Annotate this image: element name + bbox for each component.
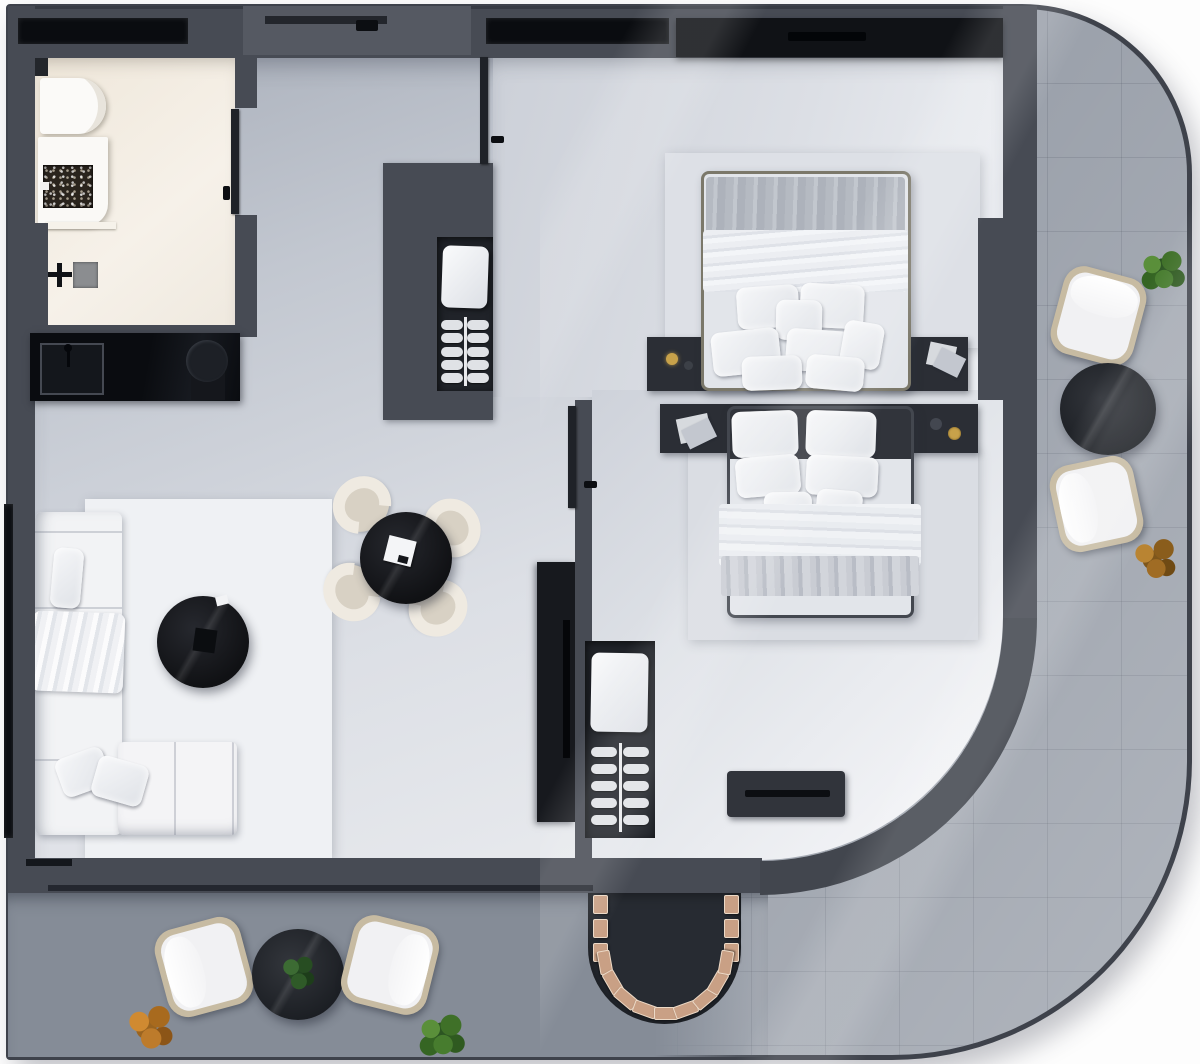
- coffee-table-tray: [193, 628, 218, 654]
- terrace-chair-bottom: [1046, 452, 1147, 556]
- terrace-table: [1060, 363, 1156, 455]
- window-bathroom: [18, 18, 188, 44]
- hanger-row: [623, 747, 650, 757]
- hanger-row: [467, 373, 488, 383]
- faucet-spout: [67, 350, 70, 367]
- hanger-row: [623, 815, 650, 825]
- hanger-row: [623, 798, 650, 808]
- bedroom2-closet-niche: [585, 641, 655, 838]
- hanger-row: [591, 764, 618, 774]
- round-basin: [186, 340, 228, 382]
- hanger-row: [441, 373, 462, 383]
- wardrobe-handle: [788, 32, 866, 41]
- closet-seat-pillow: [591, 652, 650, 732]
- window-left-strip: [4, 504, 13, 838]
- hanger-row: [441, 320, 462, 330]
- toilet-cistern-plate: [33, 56, 48, 76]
- basin-tap: [40, 182, 49, 190]
- hanger-row: [467, 333, 488, 343]
- hanger-row: [467, 347, 488, 357]
- wood-step-block: [724, 895, 739, 914]
- terrace-plant-green: [1136, 247, 1190, 297]
- mosaic-basin: [43, 165, 93, 208]
- wall-bathroom-west-block: [35, 223, 48, 330]
- hanger-row: [591, 798, 618, 808]
- floor-tap-cross-v: [57, 263, 62, 287]
- balcony-plant-orange: [120, 1000, 180, 1060]
- closet-seat-pillow: [441, 245, 489, 308]
- hanger-row: [441, 347, 462, 357]
- window-bedroom1: [486, 18, 669, 44]
- balcony-table-plant: [275, 951, 321, 997]
- wood-step-block: [717, 950, 734, 976]
- bedroom2-door-handle: [584, 481, 597, 488]
- balcony-plant-green: [414, 1010, 470, 1064]
- bedroom1-door: [480, 57, 488, 164]
- bedroom2-door: [568, 406, 576, 508]
- hanger-row: [467, 360, 488, 370]
- wall-east-step: [978, 218, 1003, 400]
- hanger-row: [591, 815, 618, 825]
- hanger-row: [623, 764, 650, 774]
- bathroom-door-handle: [223, 186, 230, 200]
- hanger-row: [591, 781, 618, 791]
- bedroom1-door-handle: [491, 136, 504, 143]
- bed1-gray-blanket: [706, 177, 905, 237]
- floor-plan-canvas: [0, 0, 1200, 1064]
- wood-step-block: [593, 919, 608, 938]
- south-glass-door-track: [48, 885, 593, 891]
- south-wall-vent: [26, 859, 72, 866]
- hanger-row: [441, 333, 462, 343]
- bath-shelf: [46, 222, 116, 229]
- hanger-row: [467, 320, 488, 330]
- terrace-plant-brown: [1126, 534, 1184, 588]
- shower-drain: [73, 262, 98, 288]
- kitchen-sink: [40, 343, 104, 395]
- wall-bathroom-east-upper: [235, 55, 257, 108]
- hanger-row: [441, 360, 462, 370]
- entrance-door-handle: [356, 20, 378, 31]
- toilet: [40, 78, 106, 134]
- hanger-row: [591, 747, 618, 757]
- hanger-row: [623, 781, 650, 791]
- wall-bathroom-east-lower: [235, 215, 257, 332]
- bedroom1-closet-niche: [437, 237, 493, 391]
- bathroom-door: [231, 109, 239, 214]
- sofa-throw-blanket: [31, 610, 126, 693]
- closet-rail: [619, 743, 622, 832]
- sofa-pillow: [49, 547, 84, 609]
- wood-step-block: [593, 895, 608, 914]
- wood-step-block: [724, 919, 739, 938]
